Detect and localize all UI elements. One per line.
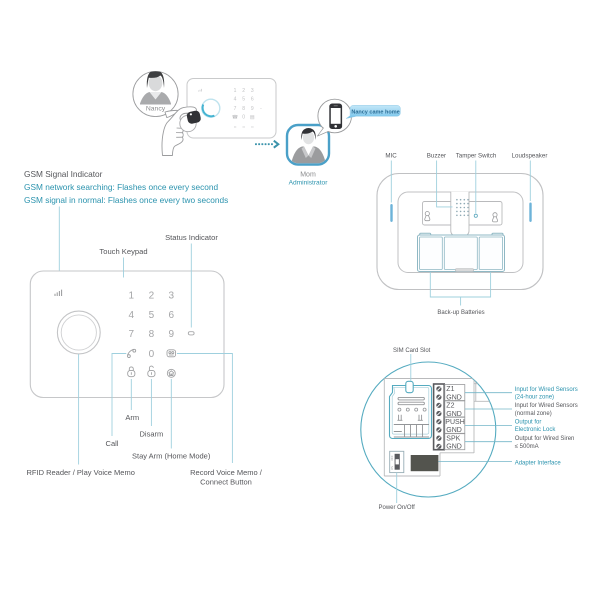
svg-text:Mom: Mom [300, 172, 316, 179]
svg-text:Record Voice Memo /: Record Voice Memo / [190, 468, 263, 477]
svg-text:4: 4 [129, 310, 135, 321]
svg-text:7: 7 [234, 106, 237, 112]
svg-text:GSM signal in normal: Flashes: GSM signal in normal: Flashes once every… [24, 195, 228, 205]
svg-text:3: 3 [169, 291, 175, 302]
svg-text:3: 3 [251, 88, 254, 94]
svg-text:6: 6 [169, 310, 175, 321]
svg-text:Stay Arm (Home Mode): Stay Arm (Home Mode) [132, 452, 211, 461]
svg-text:GND: GND [446, 427, 462, 434]
svg-text:2: 2 [242, 88, 245, 94]
svg-text:Output for Wired Siren: Output for Wired Siren [515, 436, 575, 442]
svg-text:1: 1 [129, 291, 135, 302]
svg-text:Adapter Interface: Adapter Interface [515, 460, 562, 466]
svg-text:Power On/Off: Power On/Off [379, 505, 416, 511]
svg-text:Tamper Switch: Tamper Switch [456, 153, 497, 160]
svg-text:4: 4 [234, 97, 237, 103]
svg-text:MIC: MIC [385, 153, 397, 160]
svg-text:Nancy: Nancy [146, 106, 166, 113]
svg-text:○: ○ [242, 125, 245, 131]
svg-text:RFID Reader / Play Voice Memo: RFID Reader / Play Voice Memo [27, 468, 135, 477]
svg-text:Z2: Z2 [446, 403, 454, 410]
svg-text:GND: GND [446, 394, 462, 401]
svg-text:8: 8 [242, 106, 245, 112]
svg-text:☎: ☎ [232, 115, 238, 121]
svg-text:(24-hour zone): (24-hour zone) [515, 394, 554, 400]
svg-text:Input for Wired Sensors: Input for Wired Sensors [515, 403, 578, 409]
svg-text:2: 2 [149, 291, 155, 302]
svg-text:GSM Signal Indicator: GSM Signal Indicator [24, 169, 103, 179]
svg-text:1: 1 [234, 88, 237, 94]
svg-text:OFF: OFF [390, 455, 394, 461]
svg-text:Nancy came home: Nancy came home [351, 109, 399, 115]
svg-text:SPK: SPK [446, 435, 460, 442]
svg-text:Connect Button: Connect Button [200, 478, 252, 487]
svg-text:9: 9 [251, 106, 254, 112]
svg-text:Loudspeaker: Loudspeaker [512, 153, 548, 160]
svg-text:GND: GND [446, 411, 462, 418]
svg-text:5: 5 [242, 97, 245, 103]
svg-text:Disarm: Disarm [140, 430, 164, 439]
svg-text:Buzzer: Buzzer [427, 153, 446, 160]
svg-text:○: ○ [251, 125, 254, 131]
svg-text:GSM network searching: Flashes: GSM network searching: Flashes once ever… [24, 182, 219, 192]
svg-text:9: 9 [169, 329, 175, 340]
svg-text:○: ○ [233, 125, 236, 131]
svg-text:GND: GND [446, 444, 462, 451]
svg-text:≤ 500mA: ≤ 500mA [515, 444, 539, 450]
svg-text:Z1: Z1 [446, 386, 454, 393]
svg-text:PUSH: PUSH [445, 419, 464, 426]
svg-text:7: 7 [129, 329, 135, 340]
svg-text:Back-up Batteries: Back-up Batteries [437, 310, 484, 316]
svg-text:ON: ON [390, 466, 394, 470]
svg-text:8: 8 [149, 329, 155, 340]
svg-text:Status Indicator: Status Indicator [165, 233, 218, 242]
svg-text:Output for: Output for [515, 419, 542, 425]
svg-text:Electronic Lock: Electronic Lock [515, 427, 557, 433]
svg-text:(normal zone): (normal zone) [515, 411, 552, 417]
svg-text:▤: ▤ [250, 115, 255, 121]
svg-text:6: 6 [251, 97, 254, 103]
svg-text:Administrator: Administrator [289, 180, 329, 187]
svg-text:0: 0 [149, 349, 155, 360]
svg-text:0: 0 [242, 115, 245, 121]
svg-text:Call: Call [106, 439, 119, 448]
svg-text:Arm: Arm [125, 413, 139, 422]
svg-text:SIM Card Slot: SIM Card Slot [393, 348, 431, 354]
svg-text:Touch Keypad: Touch Keypad [99, 247, 147, 256]
svg-text:Input for Wired Sensors: Input for Wired Sensors [515, 387, 578, 393]
svg-text:5: 5 [149, 310, 155, 321]
